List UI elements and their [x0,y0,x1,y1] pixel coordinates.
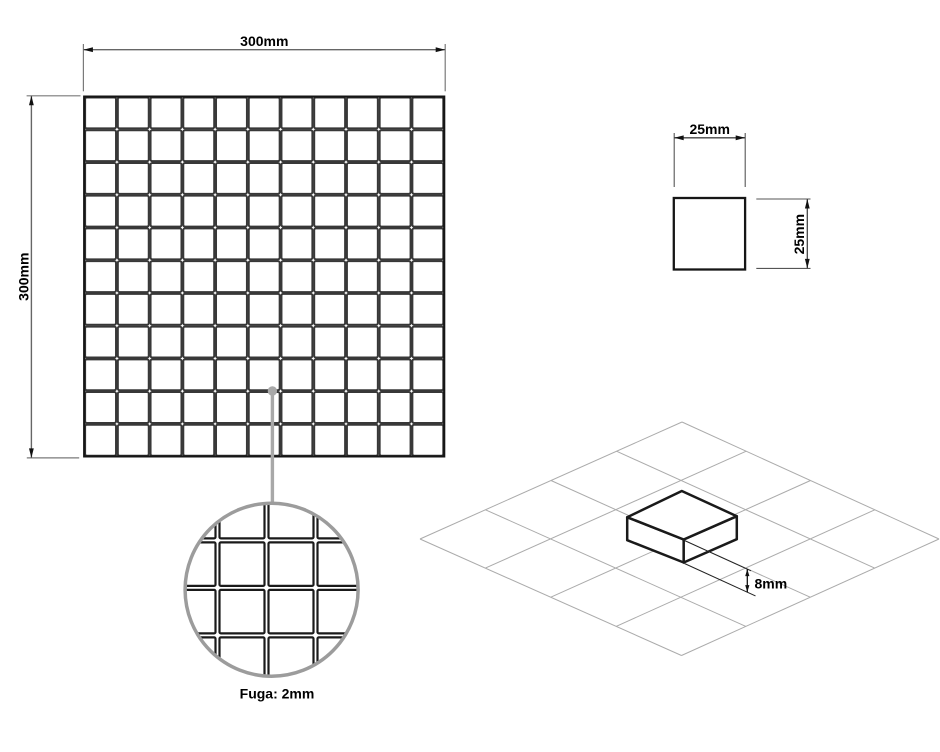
svg-text:25mm: 25mm [791,214,807,254]
svg-text:8mm: 8mm [755,576,788,592]
svg-text:300mm: 300mm [15,253,31,301]
svg-text:Fuga: 2mm: Fuga: 2mm [240,686,315,702]
svg-text:25mm: 25mm [689,121,729,137]
svg-text:300mm: 300mm [240,33,288,49]
